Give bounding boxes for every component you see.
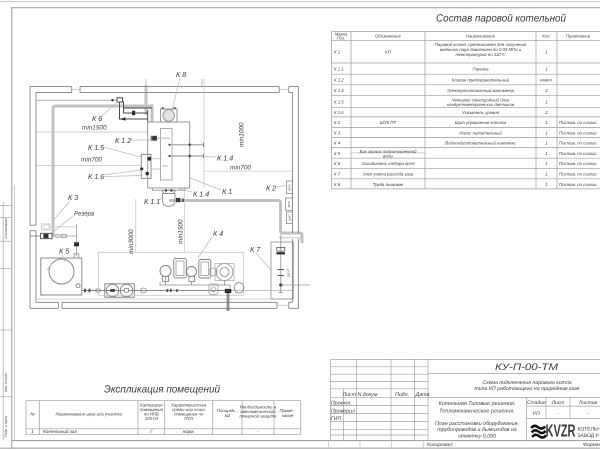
svg-text:Водоподготовительный комплекс: Водоподготовительный комплекс — [445, 141, 516, 146]
svg-text:РП: РП — [533, 411, 540, 417]
svg-text:К 8: К 8 — [176, 70, 186, 79]
svg-text:компл.: компл. — [540, 78, 553, 83]
svg-text:Щит управления котлом: Щит управления котлом — [455, 120, 506, 125]
svg-text:К 2: К 2 — [266, 184, 276, 193]
svg-text:К 1.1: К 1.1 — [144, 197, 160, 206]
svg-text:Клапан предохранительный: Клапан предохранительный — [452, 78, 510, 83]
svg-text:трубопроводов и дымоходов на: трубопроводов и дымоходов на — [437, 427, 517, 433]
svg-text:К 6: К 6 — [334, 161, 341, 166]
svg-text:Узел учета расхода газа: Узел учета расхода газа — [363, 172, 414, 177]
svg-text:температурой до 110°С: температурой до 110°С — [455, 52, 506, 57]
svg-text:KVZR: KVZR — [546, 421, 576, 441]
svg-text:Обозначение: Обозначение — [375, 34, 401, 39]
svg-text:Наименование: Наименование — [466, 34, 496, 39]
svg-text:Лист: Лист — [341, 392, 356, 398]
svg-text:КП: КП — [385, 50, 392, 55]
svg-text:чание: чание — [282, 413, 294, 418]
svg-text:Подп.: Подп. — [395, 392, 409, 398]
svg-text:К 3: К 3 — [68, 193, 78, 202]
svg-text:ЗАВОД Р: ЗАВОД Р — [578, 433, 600, 439]
svg-text:кондуктометрических датчиков: кондуктометрических датчиков — [447, 102, 515, 107]
svg-text:К 4: К 4 — [213, 229, 223, 238]
svg-text:К 7: К 7 — [250, 245, 261, 254]
svg-text:Труба дымовая: Труба дымовая — [373, 182, 404, 187]
svg-text:Согласовано: Согласовано — [4, 218, 8, 239]
svg-text:ГИП: ГИП — [331, 416, 342, 422]
svg-text:Листов: Листов — [578, 400, 598, 406]
svg-text:Постав. по соглас: Постав. по соглас — [559, 141, 598, 146]
svg-text:норм.: норм. — [183, 429, 195, 434]
svg-text:К 1.5: К 1.5 — [334, 100, 344, 105]
svg-text:N докум: N докум — [358, 392, 378, 398]
svg-text:отметку 0,000: отметку 0,000 — [458, 434, 496, 440]
svg-text:К 8: К 8 — [334, 182, 341, 187]
svg-text:Стадия: Стадия — [527, 400, 546, 406]
svg-text:Проверил: Проверил — [331, 408, 355, 414]
svg-text:Состав паровой котельной: Состав паровой котельной — [436, 13, 566, 25]
svg-text:К 1.4: К 1.4 — [193, 190, 209, 199]
svg-text:ШУУГ: ШУУГ — [287, 268, 291, 277]
svg-text:К 4: К 4 — [334, 141, 341, 146]
svg-text:Проект.: Проект. — [331, 400, 352, 406]
svg-text:Охладитель отбора проб: Охладитель отбора проб — [362, 161, 416, 166]
svg-text:К 1.4: К 1.4 — [334, 88, 344, 93]
svg-text:К 1.6: К 1.6 — [334, 110, 344, 115]
svg-text:Постав. по соглас: Постав. по соглас — [559, 161, 598, 166]
svg-text:Лист: Лист — [551, 400, 565, 406]
svg-text:Дата: Дата — [415, 392, 430, 398]
svg-text:Электроконтактный манометр: Электроконтактный манометр — [447, 88, 515, 93]
svg-text:К 7: К 7 — [334, 172, 341, 177]
svg-text:К 1.4: К 1.4 — [217, 154, 233, 163]
svg-text:Тепломеханические решения.: Тепломеханические решения. — [439, 408, 514, 414]
svg-text:Насос питательный: Насос питательный — [459, 131, 502, 136]
svg-text:К 1.5: К 1.5 — [88, 143, 105, 152]
svg-text:Подп. и дата: Подп. и дата — [4, 416, 8, 437]
svg-text:К 5: К 5 — [334, 151, 341, 156]
svg-text:Горелка: Горелка — [473, 67, 490, 72]
svg-text:Постав. по соглас: Постав. по соглас — [559, 131, 598, 136]
svg-text:пожарной защите: пожарной защите — [239, 414, 277, 419]
svg-text:Копировал:: Копировал: — [427, 442, 454, 448]
svg-text:min1500: min1500 — [82, 125, 107, 132]
svg-text:ШУК ПТ: ШУК ПТ — [380, 120, 397, 125]
svg-text:К 1: К 1 — [222, 187, 232, 196]
svg-text:Экспликация помещений: Экспликация помещений — [104, 383, 220, 395]
svg-text:КУ-П-00-ТМ: КУ-П-00-ТМ — [495, 362, 558, 373]
svg-text:ШУП: ШУП — [288, 214, 292, 221]
svg-text:Постав. по соглас: Постав. по соглас — [559, 182, 598, 187]
svg-text:Постав. по соглас: Постав. по соглас — [559, 172, 598, 177]
svg-text:КОТЕЛЬН: КОТЕЛЬН — [578, 427, 600, 433]
svg-text:К 5: К 5 — [59, 247, 70, 256]
svg-text:min1000: min1000 — [239, 122, 246, 147]
svg-text:ШУК: ШУК — [287, 201, 291, 207]
svg-text:Инв. N подл.: Инв. N подл. — [4, 372, 8, 392]
svg-text:К 1: К 1 — [334, 50, 341, 55]
svg-text:м2: м2 — [225, 413, 231, 418]
svg-text:1: 1 — [31, 429, 34, 434]
svg-text:min1500: min1500 — [178, 219, 185, 244]
svg-text:Постав. по соглас: Постав. по соглас — [559, 151, 598, 156]
svg-text:К 1.1: К 1.1 — [334, 67, 344, 72]
svg-text:К 6: К 6 — [92, 114, 102, 123]
svg-text:К 1.6: К 1.6 — [88, 172, 104, 181]
svg-text:К 1.2: К 1.2 — [115, 136, 131, 145]
svg-text:min700: min700 — [230, 165, 251, 172]
svg-text:min700: min700 — [81, 157, 102, 164]
svg-text:Примечание: Примечание — [566, 34, 591, 39]
svg-text:105-03: 105-03 — [145, 416, 159, 421]
svg-text:ШУК: ШУК — [288, 184, 292, 190]
svg-text:Постав. по соглас: Постав. по соглас — [559, 120, 598, 125]
svg-text:воды: воды — [383, 153, 394, 158]
svg-text:К 1.2: К 1.2 — [334, 78, 344, 83]
svg-text:типа КП работающего на природн: типа КП работающего на природном газе — [474, 386, 579, 392]
svg-text:К 3: К 3 — [334, 131, 341, 136]
svg-text:Формат: Формат — [583, 442, 600, 448]
svg-text:№: № — [30, 412, 35, 417]
svg-text:Г: Г — [150, 429, 153, 434]
svg-text:Кол.: Кол. — [542, 34, 550, 39]
svg-text:Указатель уровня: Указатель уровня — [462, 110, 500, 115]
svg-text:План расстановки оборудования,: План расстановки оборудования, — [435, 421, 519, 427]
svg-text:Поз.: Поз. — [337, 36, 345, 41]
svg-text:Котельный зал: Котельный зал — [43, 429, 77, 434]
svg-text:Наименование цеха или участка: Наименование цеха или участка — [55, 412, 122, 417]
svg-text:К 2: К 2 — [334, 120, 341, 125]
svg-text:Котельная.Типовые решения.: Котельная.Типовые решения. — [439, 401, 516, 407]
svg-text:min3000: min3000 — [128, 229, 135, 254]
svg-text:Резерв: Резерв — [74, 211, 95, 218]
svg-text:ПУЭ: ПУЭ — [184, 416, 193, 421]
